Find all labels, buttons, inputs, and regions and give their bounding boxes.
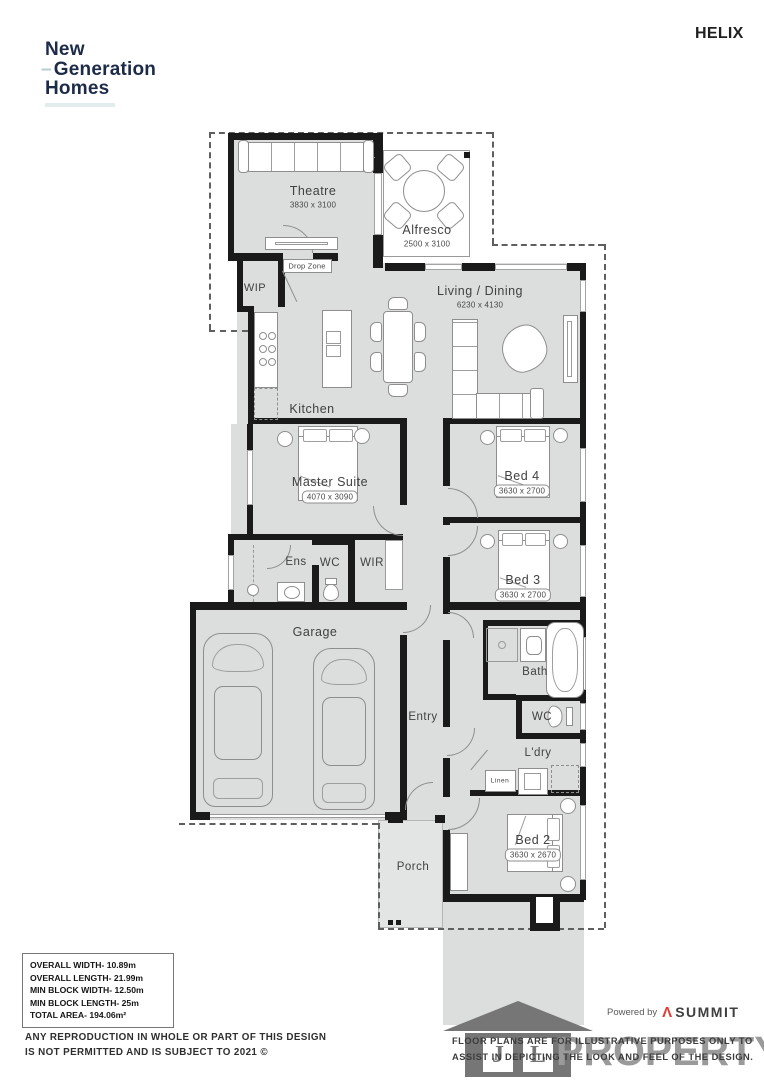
dining-chair xyxy=(388,384,408,397)
powered-by-summit: Powered by Λ SUMMIT xyxy=(607,1004,739,1020)
shower-drain xyxy=(498,641,506,649)
wall xyxy=(228,133,234,259)
pillow xyxy=(500,429,522,442)
room-label-bath: Bath xyxy=(522,666,548,678)
cooktop-burner xyxy=(259,358,267,366)
house-roof-icon xyxy=(443,1001,593,1031)
bathtub-inner xyxy=(552,628,578,692)
room-label-kitchen: Kitchen xyxy=(289,402,334,416)
room-label-bed4: Bed 4 xyxy=(504,469,539,483)
sofa xyxy=(476,393,532,419)
brand-line-3: Homes xyxy=(45,79,156,99)
laundry-door xyxy=(580,743,586,767)
boundary-line xyxy=(209,330,248,332)
car-boot xyxy=(213,778,263,799)
wall xyxy=(580,502,586,545)
tv-screen xyxy=(567,321,572,377)
room-dims-living: 6230 x 4130 xyxy=(457,301,503,310)
toilet xyxy=(323,584,339,601)
window xyxy=(374,173,382,235)
cooktop-burner xyxy=(268,332,276,340)
room-label-ldry: L'dry xyxy=(524,747,551,759)
room-label-linen: Linen xyxy=(491,778,509,785)
dining-chair xyxy=(414,322,426,342)
spec-overall-length: OVERALL LENGTH- 21.99m xyxy=(30,972,166,985)
window xyxy=(228,555,234,590)
car-boot xyxy=(322,783,366,803)
boundary-line xyxy=(492,244,604,246)
plan-title: HELIX xyxy=(695,25,744,43)
wall xyxy=(516,695,522,733)
toilet-tank xyxy=(325,578,337,585)
brand-logo: New –Generation Homes xyxy=(41,40,156,99)
toilet-tank xyxy=(566,707,573,726)
outdoor-table xyxy=(403,170,445,212)
bedside-table xyxy=(553,428,568,443)
room-label-living: Living / Dining xyxy=(437,284,523,298)
floor-porch xyxy=(378,820,443,928)
wall xyxy=(443,602,584,610)
wall xyxy=(443,517,450,525)
window xyxy=(247,450,253,505)
wall xyxy=(580,312,586,448)
room-dims-theatre: 3830 x 3100 xyxy=(290,201,336,210)
wall xyxy=(373,133,383,173)
car-hood xyxy=(321,659,367,685)
room-label-wc-main: WC xyxy=(532,711,552,723)
window xyxy=(580,805,586,880)
cooktop-burner xyxy=(268,358,276,366)
cooktop-burner xyxy=(268,345,276,353)
room-label-master: Master Suite xyxy=(292,475,368,489)
room-label-drop-zone: Drop Zone xyxy=(288,262,325,271)
boundary-line xyxy=(492,132,494,244)
wall xyxy=(443,424,450,486)
spec-total-area: TOTAL AREA- 194.06m² xyxy=(30,1009,166,1022)
brand-line-1: New xyxy=(45,40,156,60)
rear-step-inner xyxy=(536,897,553,923)
robe xyxy=(450,833,468,891)
car-cabin xyxy=(214,686,263,760)
wall xyxy=(312,538,352,545)
alfresco-post xyxy=(464,152,470,158)
wall xyxy=(190,602,196,818)
car xyxy=(313,648,375,810)
spec-min-block-width: MIN BLOCK WIDTH- 12.50m xyxy=(30,984,166,997)
powered-by-text: Powered by xyxy=(607,1007,657,1018)
summit-logo-icon: Λ xyxy=(662,1005,672,1020)
boundary-line xyxy=(378,928,604,930)
dining-chair xyxy=(370,352,382,372)
room-label-theatre: Theatre xyxy=(290,184,337,198)
room-label-bed2: Bed 2 xyxy=(515,833,550,847)
bedside-table xyxy=(277,431,293,447)
wall xyxy=(385,263,425,271)
sofa xyxy=(452,319,478,419)
car-hood xyxy=(212,644,264,672)
room-label-entry: Entry xyxy=(408,711,437,723)
copyright-disclaimer: ANY REPRODUCTION IN WHOLE OR PART OF THI… xyxy=(25,1030,326,1060)
wardrobe-shelf xyxy=(385,540,403,590)
boundary-line xyxy=(604,244,606,928)
spec-overall-width: OVERALL WIDTH- 10.89m xyxy=(30,959,166,972)
porch-post xyxy=(388,920,393,925)
room-dims-alfresco: 2500 x 3100 xyxy=(404,240,450,249)
dining-table xyxy=(383,311,413,383)
room-dims-bed2: 3630 x 2670 xyxy=(505,849,561,862)
sliding-door xyxy=(425,264,462,270)
boundary-line xyxy=(378,823,380,928)
pillow xyxy=(329,429,353,442)
dining-chair xyxy=(414,352,426,372)
wall xyxy=(228,133,380,140)
room-label-garage: Garage xyxy=(293,625,338,639)
bedside-table xyxy=(553,534,568,549)
summit-wordmark: SUMMIT xyxy=(675,1004,739,1020)
wall xyxy=(190,812,210,820)
bedside-table xyxy=(560,876,576,892)
wall xyxy=(516,733,583,739)
disclaimer-line-1: ANY REPRODUCTION IN WHOLE OR PART OF THI… xyxy=(25,1030,326,1045)
boundary-line xyxy=(179,823,378,825)
pillow xyxy=(524,429,546,442)
room-label-alfresco: Alfresco xyxy=(402,223,451,237)
floorplan-flyer: New –Generation Homes HELIX xyxy=(0,0,764,1080)
disclaimer-line-2: IS NOT PERMITTED AND IS SUBJECT TO 2021 … xyxy=(25,1045,326,1060)
wall xyxy=(373,235,383,268)
note-line-2: ASSIST IN DEPICTING THE LOOK AND FEEL OF… xyxy=(452,1049,753,1065)
room-label-bed3: Bed 3 xyxy=(505,573,540,587)
wall xyxy=(237,255,243,312)
room-dims-bed4: 3630 x 2700 xyxy=(494,485,550,498)
basin xyxy=(284,586,300,599)
bedside-table xyxy=(560,798,576,814)
note-line-1: FLOOR PLANS ARE FOR ILLUSTRATIVE PURPOSE… xyxy=(452,1033,753,1049)
tv-screen xyxy=(275,242,328,245)
sink xyxy=(326,345,341,357)
wall xyxy=(400,424,407,505)
spec-min-block-length: MIN BLOCK LENGTH- 25m xyxy=(30,997,166,1010)
room-label-ens: Ens xyxy=(285,556,306,568)
wall xyxy=(443,830,450,900)
room-label-wc-ens: WC xyxy=(320,557,340,569)
porch-post xyxy=(396,920,401,925)
brand-dash: – xyxy=(41,59,52,80)
bedside-table xyxy=(480,534,495,549)
brand-underline xyxy=(45,103,115,107)
wall xyxy=(443,758,450,797)
wall xyxy=(462,263,495,271)
wall xyxy=(435,815,445,823)
wall xyxy=(190,602,407,610)
bathtub xyxy=(546,622,584,698)
cooktop-burner xyxy=(259,345,267,353)
illustrative-note: FLOOR PLANS ARE FOR ILLUSTRATIVE PURPOSE… xyxy=(452,1033,753,1065)
trough-sink xyxy=(524,773,541,790)
washer-space xyxy=(551,765,579,793)
wall xyxy=(483,694,516,700)
pillow xyxy=(525,533,546,546)
wall xyxy=(348,537,355,602)
wall xyxy=(400,635,407,820)
wall xyxy=(580,263,586,280)
brand-line-2: –Generation xyxy=(41,60,156,80)
spec-box: OVERALL WIDTH- 10.89m OVERALL LENGTH- 21… xyxy=(22,953,174,1028)
cooktop-burner xyxy=(259,332,267,340)
dining-chair xyxy=(370,322,382,342)
window xyxy=(580,703,586,730)
shower-rose xyxy=(247,584,259,596)
room-label-wip: WIP xyxy=(244,282,266,294)
garage-door xyxy=(210,814,385,818)
floorplan: Theatre 3830 x 3100 Alfresco 2500 x 3100… xyxy=(185,125,615,937)
window xyxy=(580,545,586,597)
theatre-sofa xyxy=(248,142,364,172)
sofa-arm xyxy=(530,388,544,419)
room-label-wir: WIR xyxy=(360,557,384,569)
basin xyxy=(526,636,542,655)
window xyxy=(495,264,567,270)
car xyxy=(203,633,273,807)
room-label-porch: Porch xyxy=(397,861,430,873)
sink xyxy=(326,331,341,344)
room-dims-master: 4070 x 3090 xyxy=(302,491,358,504)
boundary-line xyxy=(209,132,211,330)
wall xyxy=(443,894,584,902)
car-cabin xyxy=(322,697,365,766)
dining-chair xyxy=(388,297,408,310)
sofa-arm xyxy=(238,140,249,173)
pillow xyxy=(502,533,523,546)
room-dims-bed3: 3630 x 2700 xyxy=(495,589,551,602)
wall xyxy=(443,640,450,727)
pillow xyxy=(303,429,327,442)
window xyxy=(580,280,586,312)
bedside-table xyxy=(480,430,495,445)
wall xyxy=(580,767,586,805)
sofa-arm xyxy=(363,140,374,173)
bedside-table xyxy=(354,428,370,444)
window xyxy=(580,448,586,502)
brand-line-2-text: Generation xyxy=(54,59,156,80)
wall xyxy=(312,565,319,602)
wall xyxy=(388,815,403,823)
fridge-space xyxy=(254,388,278,420)
